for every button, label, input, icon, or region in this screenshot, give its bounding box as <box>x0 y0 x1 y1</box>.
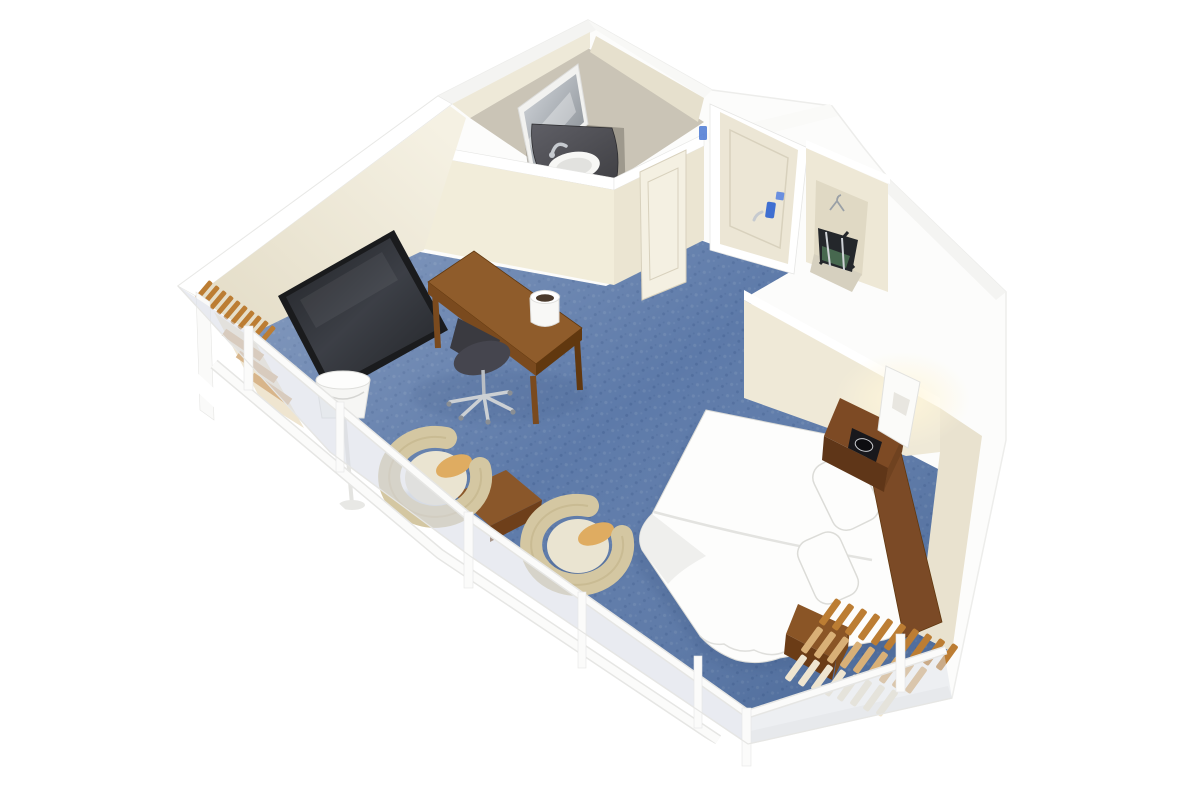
lamp-shade-top <box>316 371 370 389</box>
door-card-slot <box>775 191 784 200</box>
door-hinge-sign <box>699 126 707 140</box>
faucet-base <box>549 152 555 158</box>
desk-shadow <box>412 370 588 422</box>
desk-leg-left <box>435 292 438 348</box>
mullion-1 <box>244 326 253 390</box>
mullion-3 <box>464 512 473 588</box>
mullion-7 <box>896 634 905 692</box>
pocket-door <box>640 150 686 300</box>
pocket-door-slab <box>640 150 686 300</box>
floorplan-svg <box>0 0 1200 800</box>
bucket-inner <box>536 294 554 302</box>
room-rendering <box>0 0 1200 800</box>
desk-leg-right <box>577 340 580 390</box>
chair-post <box>483 370 484 396</box>
ice-bucket <box>530 291 560 327</box>
mullion-5 <box>694 656 702 728</box>
mullion-6 <box>742 708 751 766</box>
desk-leg-front <box>533 376 536 424</box>
